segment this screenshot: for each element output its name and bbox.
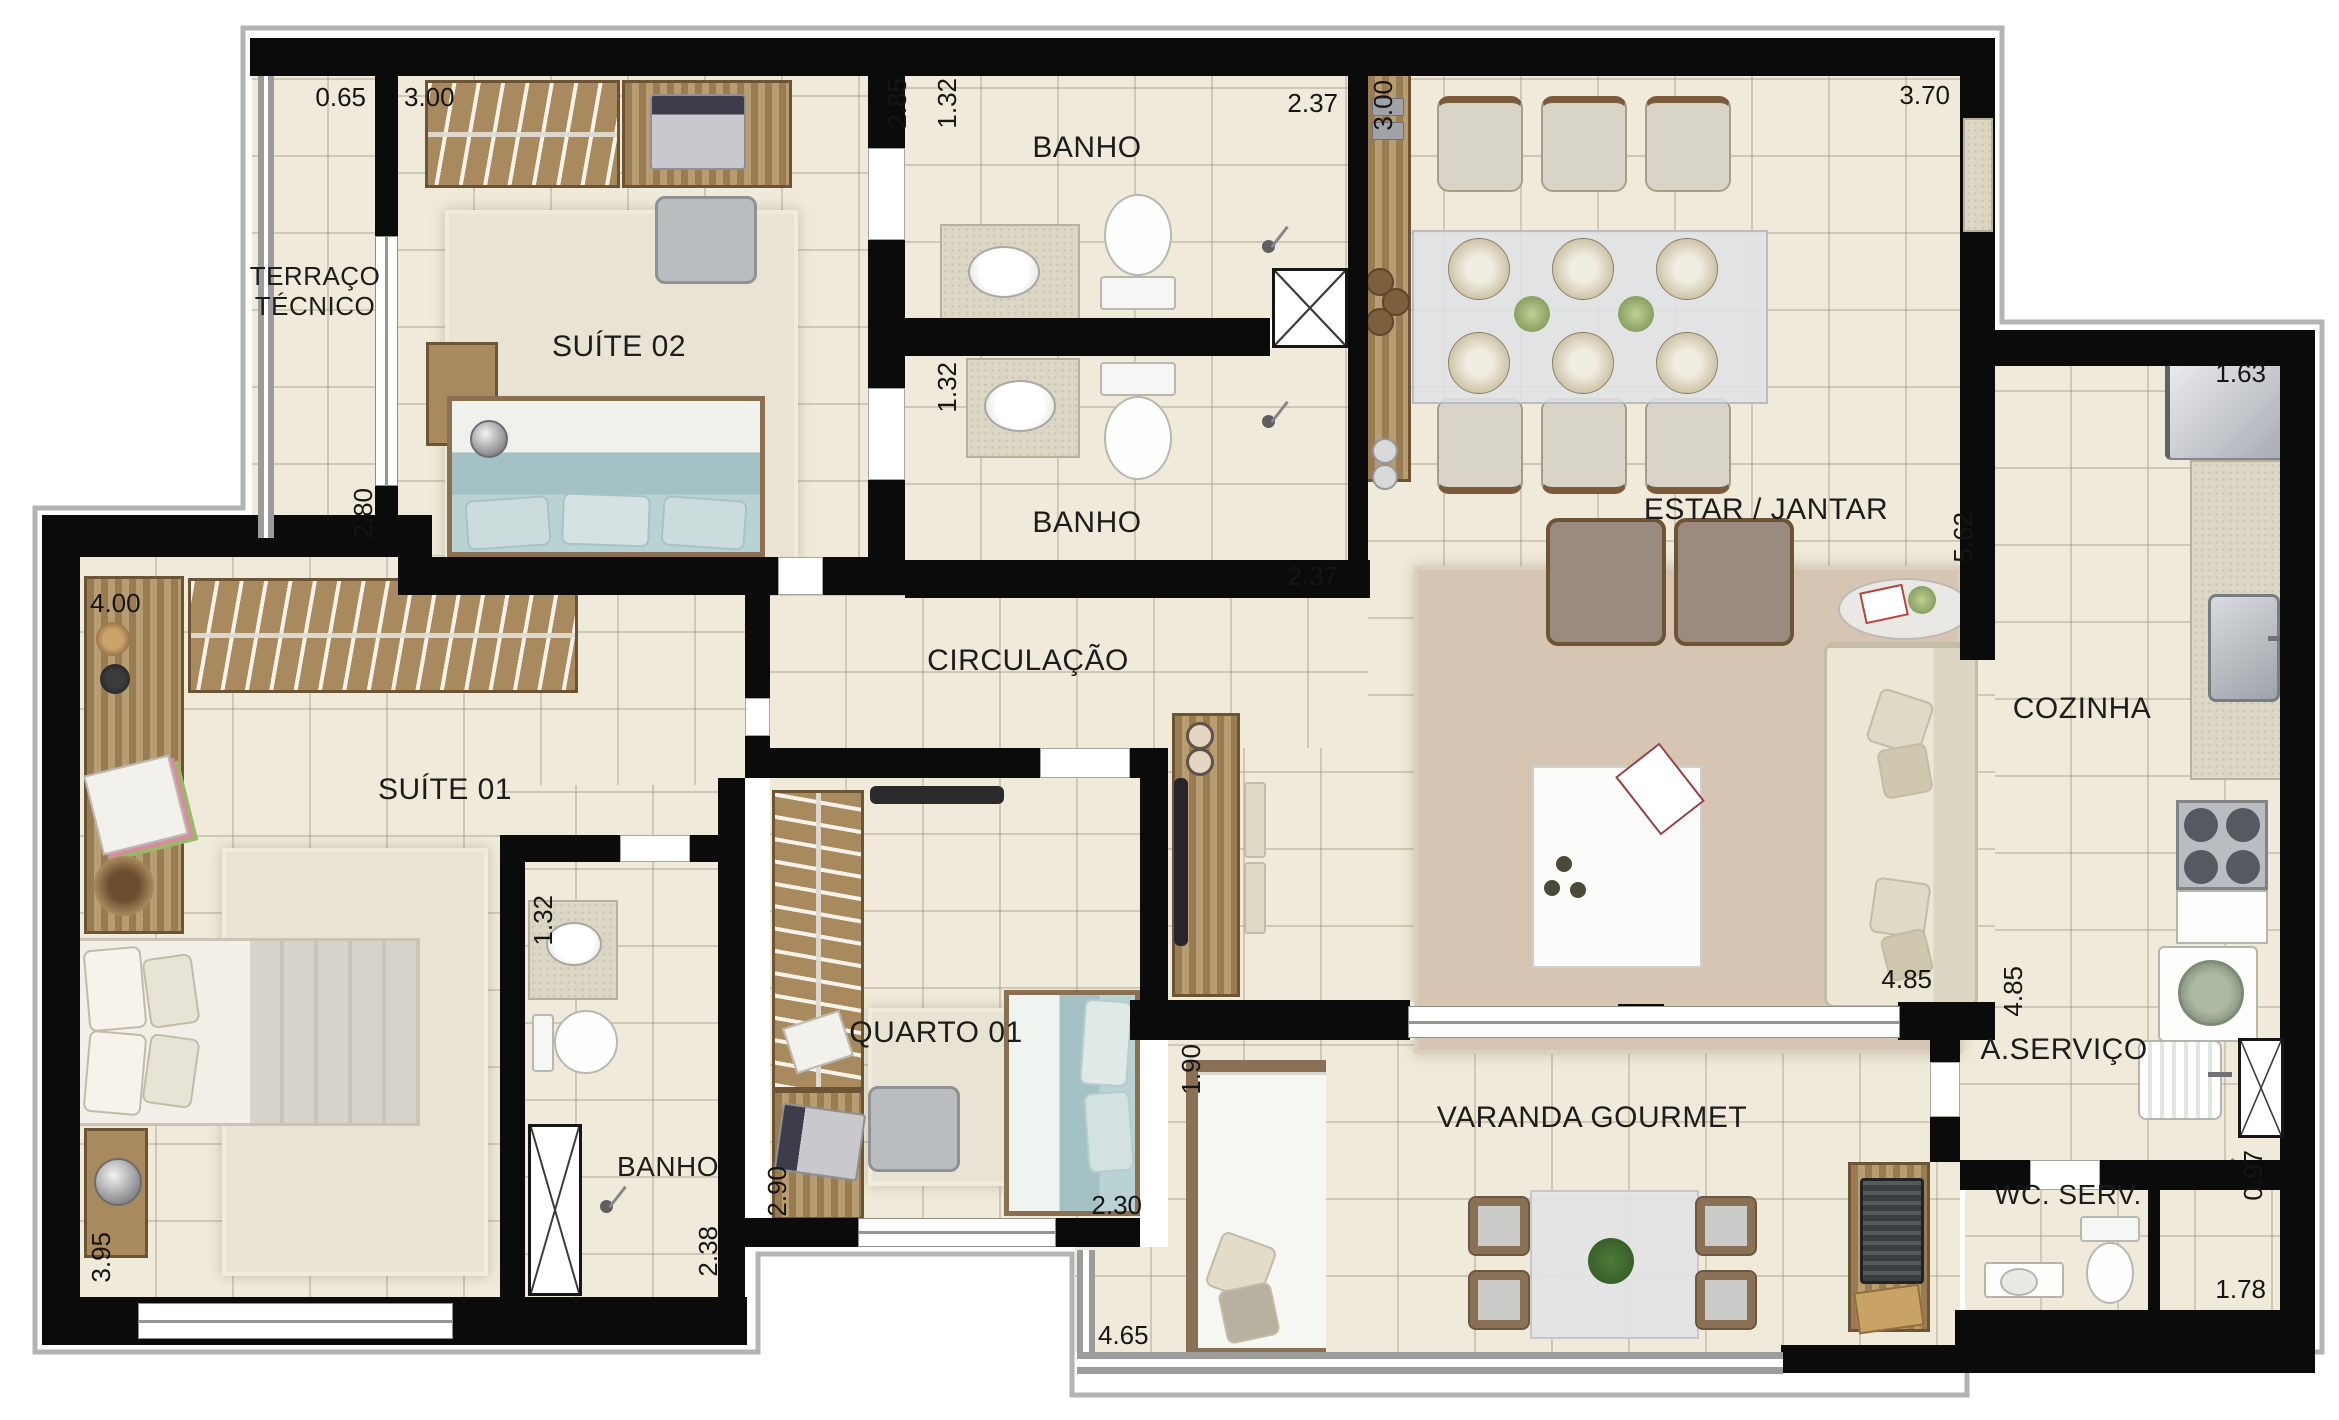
toilet-banho-sup1 [1104,194,1172,276]
shower-head-icon [1262,415,1275,428]
round-tray [94,856,154,916]
shower-head-icon [600,1200,613,1213]
toilet-tank-banho-sup1 [1100,276,1176,310]
pillow-suite02 [561,492,651,547]
room-label-banho-sup1: BANHO [1032,131,1141,166]
laundry-tank [2138,1040,2222,1120]
door-banho-sup1 [868,148,905,240]
dim-living-width: 4.85 [1842,966,1932,992]
wall [500,835,525,1330]
pillow-suite02 [660,495,747,551]
bed-pillow-quarto01 [1079,998,1133,1087]
dim-banho-suite01-depth: 2.38 [695,1226,721,1277]
dim-cozinha-width: 1.63 [2198,360,2266,386]
bed-pillow [83,1030,148,1117]
bed-pillow [141,953,200,1029]
candles [1570,882,1586,898]
kitchen-sink [2208,594,2280,702]
dim-varanda-depth: 1.90 [1178,1044,1204,1095]
toilet-tank-banho-suite01 [532,1014,554,1072]
tv-quarto01 [870,786,1004,804]
dim-wc-shower-width: 0.97 [2240,1150,2266,1201]
wall [1130,1000,1410,1040]
dining-chair [1541,96,1627,192]
ventilation-duct-x-icon [1272,268,1348,348]
dim-suite02-width: 3.00 [404,84,455,110]
sink-banho-sup1 [968,246,1040,298]
door-servico [1930,1062,1960,1117]
door-suite02 [778,557,823,595]
toilet-tank-wc [2080,1216,2140,1242]
dining-chair [1437,96,1523,192]
dim-terraco-width: 0.65 [300,84,366,110]
shower-head-icon [1262,240,1275,253]
wall [1995,330,2315,366]
cooktop-burner [2184,808,2218,842]
dining-chair [1645,96,1731,192]
floor-plan: TERRAÇO TÉCNICO SUÍTE 02 BANHO BANHO EST… [0,0,2339,1420]
candles [1556,856,1572,872]
dim-estar-width: 3.70 [1880,82,1950,108]
varanda-sofa-pillow [1217,1281,1281,1345]
wall [1128,748,1168,778]
dim-banho2-width: 1.32 [934,362,960,413]
armchair [1674,518,1794,646]
place-setting [1656,238,1718,300]
bed-pillow [141,1033,200,1109]
wc-sink-basin [2000,1268,2038,1296]
varanda-chair [1695,1196,1757,1256]
pillow-suite02 [464,495,551,551]
barbecue-grill [1860,1178,1924,1284]
varanda-railing-left [1077,1250,1095,1352]
office-chair-suite02 [655,196,757,284]
centerpiece-flowers [1618,296,1654,332]
dim-hall-depth: 3.00 [1370,80,1396,131]
tank-faucet-icon [2208,1072,2232,1077]
wall [375,486,398,557]
bed-pillow [83,946,148,1033]
buffet-vase [1372,464,1398,490]
room-label-banho-suite01: BANHO [617,1151,719,1183]
wall [1348,38,1368,560]
speaker-icon [1186,748,1214,776]
varanda-chair [1695,1270,1757,1330]
side-table-flowers [1908,586,1936,614]
dim-banho1-width: 1.32 [934,78,960,129]
door-suite01 [745,698,770,736]
room-label-banho-sup2: BANHO [1032,506,1141,541]
cooktop-burner [2184,850,2218,884]
wall [1781,1345,2315,1373]
dining-chair [1437,398,1523,494]
buffet-bowl [1366,308,1394,336]
laptop-suite02 [650,94,746,170]
cooktop-burner [2226,850,2260,884]
room-label-wc: WC. SERV. [1994,1179,2142,1211]
wall [905,318,1270,356]
floor-banho-sup2-nook [1270,348,1348,560]
dim-varanda-width: 4.65 [1098,1322,1149,1348]
varanda-chair [1468,1196,1530,1256]
bench-cushion [1244,862,1266,934]
sliding-door-varanda [1408,1006,1900,1038]
dim-quarto01-bed: 2.30 [1076,1192,1142,1218]
toilet-tank-banho-sup2 [1100,362,1176,396]
ventilation-duct-x-icon [528,1124,582,1296]
speaker-icon [1186,722,1214,750]
dining-chair [1541,398,1627,494]
ventilation-duct-x-icon [2238,1038,2284,1138]
chair-quarto01 [868,1086,960,1172]
dim-suite01-width: 4.00 [90,590,141,616]
wall [1898,1002,1960,1040]
place-setting [1552,238,1614,300]
decor-bowl [100,664,130,694]
place-setting [1448,238,1510,300]
wall [745,748,1040,778]
table-lamp-suite02 [470,420,508,458]
toilet-banho-suite01 [554,1010,618,1074]
wall [250,38,1995,76]
varanda-chair [1468,1270,1530,1330]
wall [375,76,398,236]
tv-icon [1174,778,1188,946]
room-label-suite02: SUÍTE 02 [552,330,686,365]
room-label-estar: ESTAR / JANTAR [1644,493,1888,528]
wall [868,55,905,560]
room-label-cozinha: COZINHA [2013,692,2152,727]
place-setting [1448,332,1510,394]
dim-closet-depth: 2.85 [884,78,910,129]
wall [42,515,80,1345]
wall [1955,1310,2315,1345]
window-suite01 [138,1303,453,1339]
dim-terraco-depth: 2.80 [350,488,376,539]
decor-bowl [96,622,130,656]
washer-lid [2178,960,2244,1026]
toilet-wc [2086,1242,2134,1304]
centerpiece-flowers [1514,296,1550,332]
kitchen-cabinet [2176,890,2268,944]
buffet-vase [1372,438,1398,464]
dim-servico-depth: 4.85 [2000,966,2026,1017]
dim-banho2-depth: 2.37 [1258,563,1338,589]
place-setting [1552,332,1614,394]
dim-wc-width: 1.78 [2196,1276,2266,1302]
varanda-railing-bottom [1077,1352,1783,1374]
room-label-terraco: TERRAÇO TÉCNICO [240,262,390,322]
room-label-servico: A.SERVIÇO [1980,1033,2147,1068]
bench-cushion [1244,782,1266,858]
room-label-quarto01: QUARTO 01 [849,1016,1022,1051]
bed-pillow-quarto01 [1083,1090,1134,1173]
toilet-banho-sup2 [1104,396,1172,480]
armchair [1546,518,1666,646]
cooktop-burner [2226,808,2260,842]
wardrobe-suite01 [188,578,578,693]
room-label-suite01: SUÍTE 01 [378,773,512,808]
bed-suite01-throw [250,941,417,1123]
dim-banho1-depth: 2.37 [1258,90,1338,116]
door-banho-sup2 [868,388,905,480]
entry-door-sill [1963,118,1993,232]
sofa-pillow [1876,742,1934,800]
wall [398,557,905,595]
dim-estar-depth: 5.62 [1950,512,1976,563]
varanda-plant [1588,1238,1634,1284]
wall [2280,330,2315,1345]
wall [745,568,770,778]
dim-banho-suite01-width: 1.32 [530,895,556,946]
room-label-varanda: VARANDA GOURMET [1437,1101,1747,1136]
dining-chair [1645,398,1731,494]
dim-suite01-depth: 3.95 [88,1232,114,1283]
wall [1140,748,1168,1000]
nightstand-lamp [94,1158,142,1206]
dim-quarto01-width: 2.90 [764,1166,790,1217]
candles [1544,880,1560,896]
place-setting [1656,332,1718,394]
room-label-circulacao: CIRCULAÇÃO [927,644,1129,679]
window-quarto01 [858,1218,1056,1247]
door-banho-suite01 [620,835,690,862]
sink-banho-sup2 [984,380,1056,432]
door-quarto01 [1040,748,1130,778]
wall [1960,338,1995,660]
wall [2148,1190,2160,1312]
